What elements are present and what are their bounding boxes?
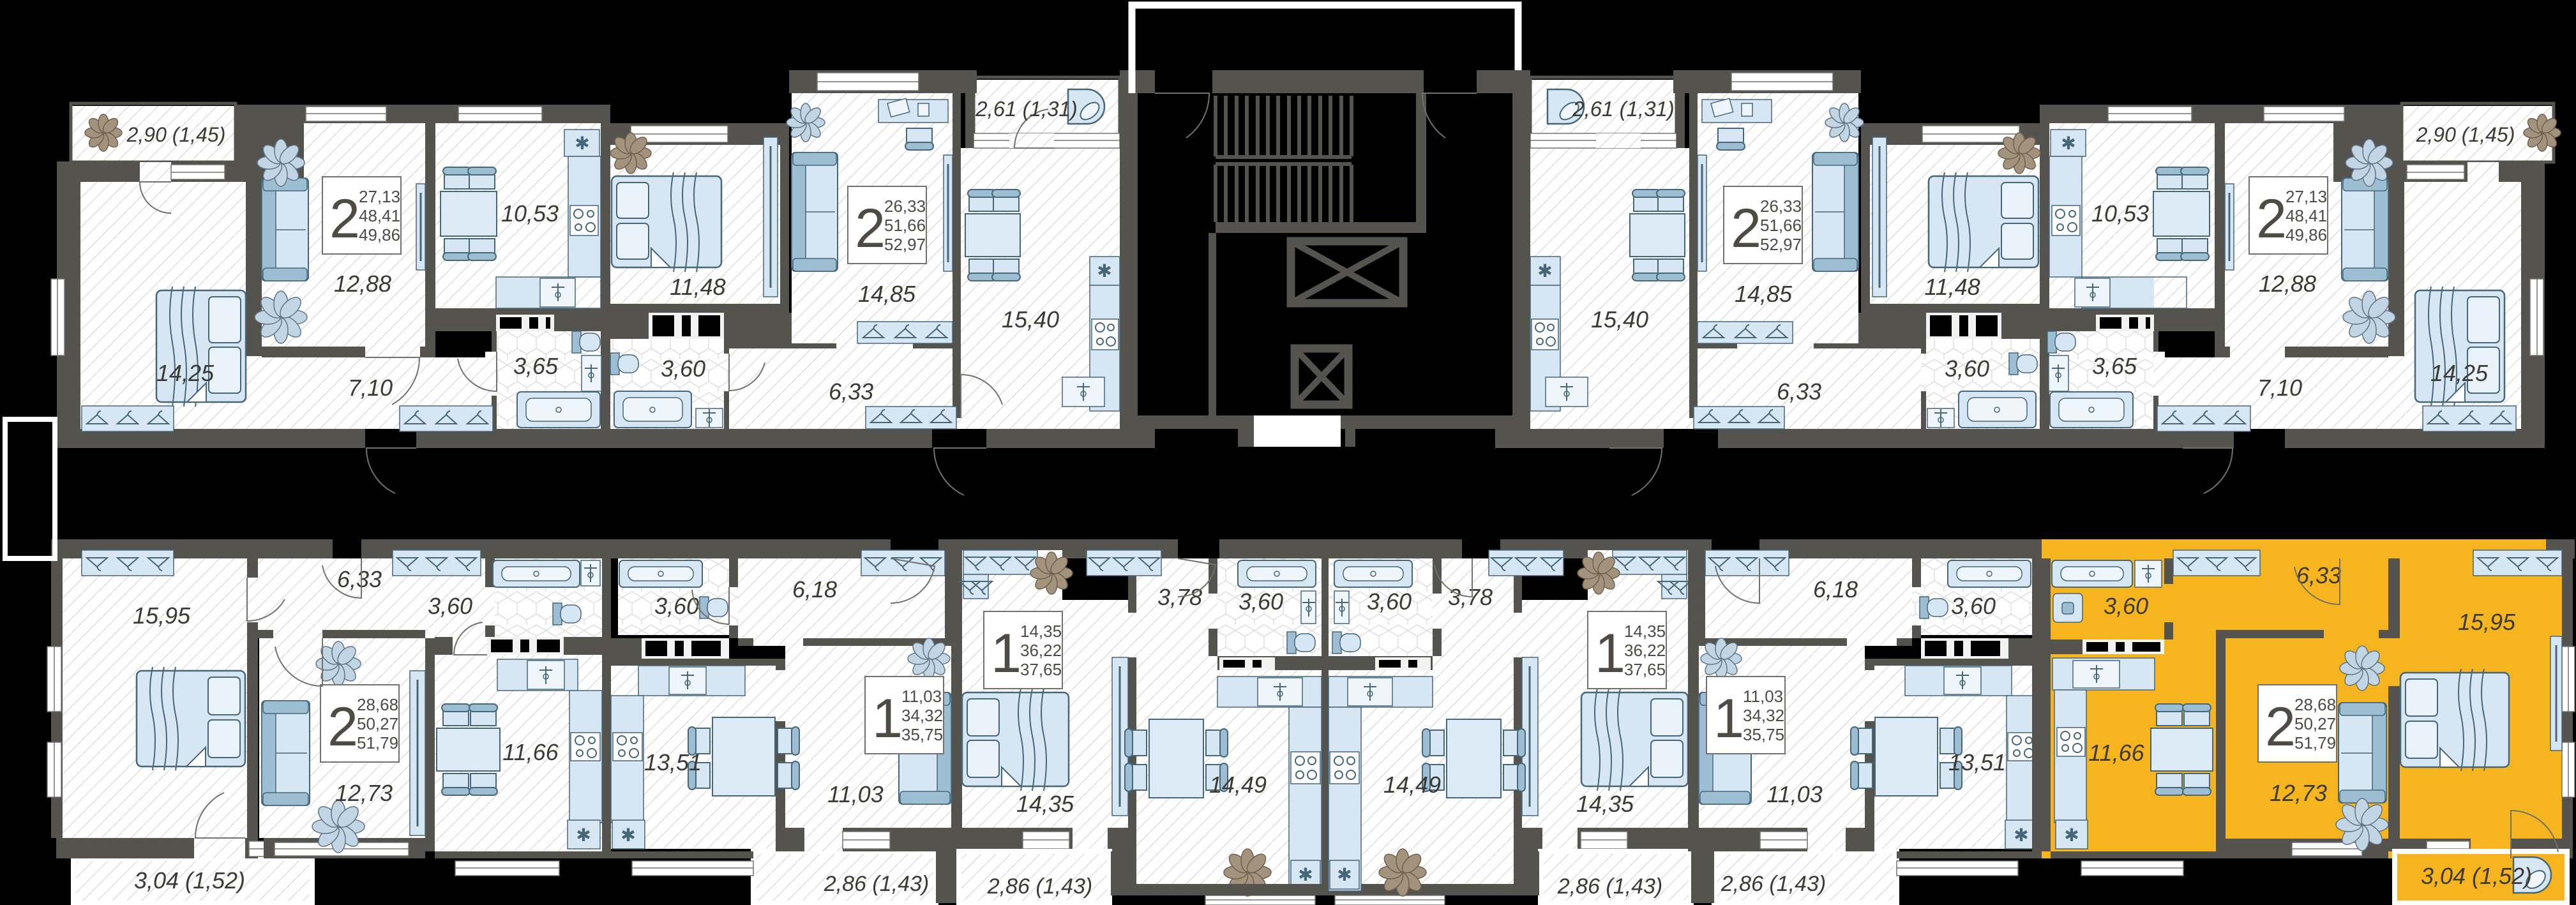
svg-text:12,73: 12,73: [2270, 780, 2327, 806]
svg-text:3,60: 3,60: [654, 593, 699, 619]
svg-text:11,66: 11,66: [502, 739, 559, 765]
svg-text:6,33: 6,33: [337, 566, 382, 592]
svg-text:28,68: 28,68: [2294, 695, 2336, 714]
svg-text:✱: ✱: [1298, 865, 1313, 885]
svg-text:6,33: 6,33: [829, 378, 873, 405]
svg-text:✱: ✱: [2014, 825, 2028, 845]
svg-text:15,40: 15,40: [1591, 306, 1648, 333]
svg-text:14,25: 14,25: [156, 360, 215, 386]
svg-text:6,18: 6,18: [1813, 576, 1858, 602]
svg-text:51,66: 51,66: [884, 216, 926, 235]
svg-text:11,03: 11,03: [901, 687, 942, 706]
svg-text:12,88: 12,88: [334, 271, 391, 297]
svg-text:26,33: 26,33: [1760, 197, 1802, 216]
svg-text:11,48: 11,48: [670, 274, 725, 300]
svg-text:14,85: 14,85: [858, 281, 916, 307]
svg-text:14,25: 14,25: [2430, 360, 2489, 386]
svg-text:2,90 (1,45): 2,90 (1,45): [126, 123, 226, 146]
svg-text:51,66: 51,66: [1760, 216, 1802, 235]
svg-text:10,53: 10,53: [501, 200, 559, 227]
svg-text:15,95: 15,95: [133, 602, 191, 629]
svg-text:3,60: 3,60: [428, 593, 472, 619]
svg-text:✱: ✱: [2061, 133, 2075, 153]
svg-text:10,53: 10,53: [2091, 200, 2149, 227]
svg-text:3,60: 3,60: [1367, 588, 1412, 615]
svg-text:2,61 (1,31): 2,61 (1,31): [975, 97, 1078, 121]
svg-text:2,86 (1,43): 2,86 (1,43): [1721, 872, 1826, 896]
svg-text:2: 2: [2265, 696, 2296, 758]
svg-text:14,85: 14,85: [1735, 281, 1793, 307]
svg-text:52,97: 52,97: [1760, 235, 1802, 254]
svg-text:15,95: 15,95: [2458, 609, 2516, 635]
svg-text:14,35: 14,35: [1624, 622, 1666, 641]
svg-text:37,65: 37,65: [1020, 660, 1062, 679]
svg-text:3,65: 3,65: [2092, 353, 2137, 379]
svg-text:2: 2: [2256, 188, 2287, 250]
svg-text:6,18: 6,18: [792, 576, 837, 602]
svg-text:37,65: 37,65: [1624, 660, 1666, 679]
svg-text:✱: ✱: [575, 133, 589, 153]
svg-text:11,66: 11,66: [2088, 740, 2144, 766]
svg-text:35,75: 35,75: [1743, 725, 1784, 744]
svg-text:1: 1: [872, 688, 903, 749]
svg-text:28,68: 28,68: [357, 695, 398, 714]
svg-text:14,35: 14,35: [1020, 622, 1062, 641]
svg-text:✱: ✱: [576, 825, 591, 845]
svg-text:3,04 (1,52): 3,04 (1,52): [134, 867, 245, 894]
svg-text:14,49: 14,49: [1209, 772, 1267, 798]
svg-text:14,35: 14,35: [1576, 791, 1634, 817]
svg-text:14,49: 14,49: [1383, 772, 1441, 798]
svg-text:2,86 (1,43): 2,86 (1,43): [987, 874, 1092, 899]
svg-text:2: 2: [1731, 198, 1761, 259]
svg-text:2: 2: [329, 188, 360, 250]
svg-text:2,61 (1,31): 2,61 (1,31): [1572, 97, 1675, 121]
svg-text:12,73: 12,73: [335, 780, 393, 806]
svg-text:6,33: 6,33: [2296, 562, 2341, 588]
svg-text:✱: ✱: [1097, 261, 1111, 281]
svg-text:1: 1: [1714, 688, 1744, 749]
svg-text:6,33: 6,33: [1777, 378, 1821, 405]
svg-text:13,51: 13,51: [644, 749, 702, 775]
svg-text:2: 2: [328, 696, 358, 758]
svg-text:1: 1: [1595, 623, 1625, 684]
svg-text:27,13: 27,13: [359, 187, 400, 206]
svg-text:2,86 (1,43): 2,86 (1,43): [1557, 874, 1662, 899]
svg-text:51,79: 51,79: [2294, 733, 2336, 752]
svg-text:14,35: 14,35: [1016, 791, 1074, 817]
svg-text:35,75: 35,75: [901, 725, 943, 744]
svg-text:34,32: 34,32: [901, 706, 943, 725]
svg-text:50,27: 50,27: [357, 714, 398, 733]
svg-text:34,32: 34,32: [1743, 706, 1784, 725]
svg-text:3,60: 3,60: [661, 355, 705, 382]
svg-text:3,60: 3,60: [1951, 593, 1996, 619]
svg-text:3,65: 3,65: [513, 353, 559, 379]
svg-text:52,97: 52,97: [884, 235, 926, 254]
svg-text:51,79: 51,79: [357, 733, 398, 752]
svg-text:50,27: 50,27: [2294, 714, 2336, 733]
svg-text:49,86: 49,86: [359, 225, 400, 244]
svg-text:48,41: 48,41: [2286, 206, 2327, 225]
svg-text:3,60: 3,60: [1945, 355, 1989, 382]
svg-text:36,22: 36,22: [1020, 641, 1062, 660]
svg-text:✱: ✱: [1537, 261, 1552, 281]
svg-text:49,86: 49,86: [2286, 225, 2327, 244]
svg-text:11,03: 11,03: [1743, 687, 1783, 706]
svg-text:1: 1: [991, 623, 1021, 684]
svg-text:26,33: 26,33: [884, 197, 926, 216]
svg-text:✱: ✱: [621, 825, 635, 845]
svg-text:2,86 (1,43): 2,86 (1,43): [824, 872, 929, 896]
svg-text:12,88: 12,88: [2259, 271, 2316, 297]
svg-text:3,60: 3,60: [2104, 593, 2148, 619]
svg-text:27,13: 27,13: [2286, 187, 2327, 206]
svg-text:2,90 (1,45): 2,90 (1,45): [2416, 123, 2515, 146]
svg-text:11,48: 11,48: [1924, 274, 1980, 300]
svg-text:48,41: 48,41: [359, 206, 400, 225]
svg-text:3,60: 3,60: [1239, 588, 1283, 615]
svg-text:7,10: 7,10: [2257, 375, 2302, 401]
svg-text:✱: ✱: [2064, 825, 2079, 845]
svg-text:13,51: 13,51: [1948, 749, 2006, 775]
svg-text:7,10: 7,10: [348, 375, 393, 401]
svg-text:3,04 (1,52): 3,04 (1,52): [2421, 863, 2532, 889]
svg-text:15,40: 15,40: [1002, 306, 1059, 333]
svg-text:11,03: 11,03: [827, 781, 883, 807]
svg-text:11,03: 11,03: [1766, 781, 1822, 807]
svg-text:36,22: 36,22: [1624, 641, 1666, 660]
svg-text:2: 2: [855, 198, 885, 259]
svg-text:✱: ✱: [1337, 865, 1352, 885]
